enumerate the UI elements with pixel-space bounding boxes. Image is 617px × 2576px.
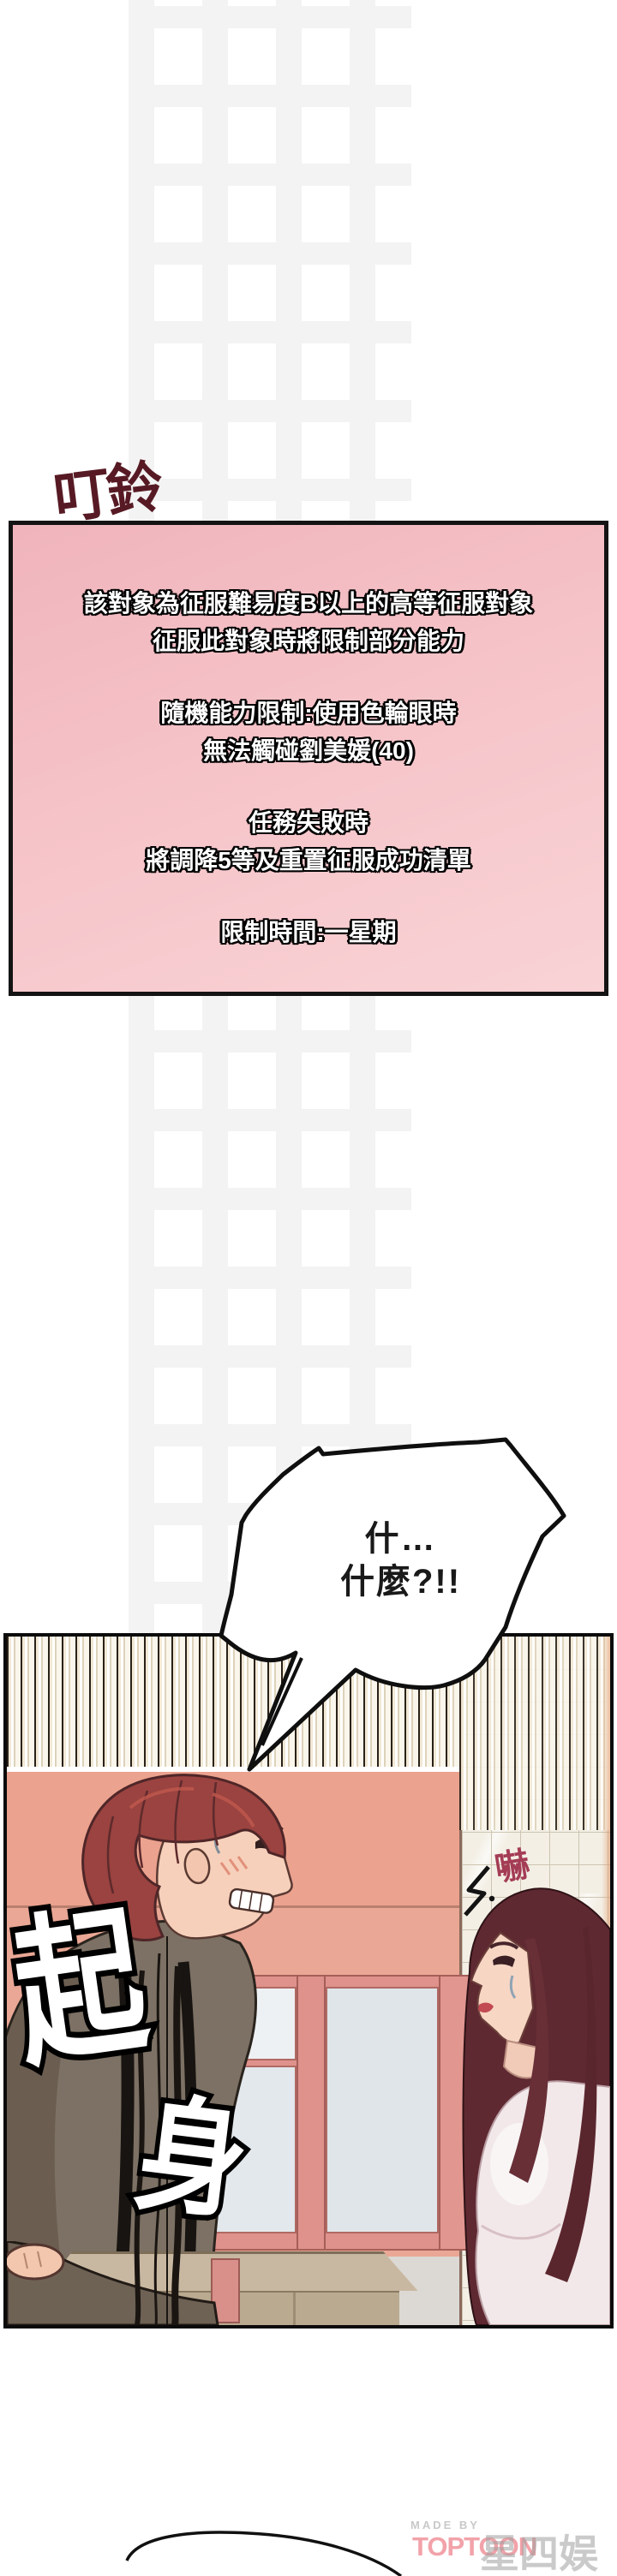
system-line: 限制時間:一星期 xyxy=(13,914,604,951)
made-by-label: MADE BY xyxy=(410,2519,480,2531)
system-line: 征服此對象時將限制部分能力 xyxy=(13,623,604,660)
man-hand xyxy=(7,2245,63,2279)
shout-text: 什… 什麼?!! xyxy=(308,1518,493,1603)
svg-text:身: 身 xyxy=(129,2083,255,2236)
system-line: 無法觸碰劉美媛(40) xyxy=(13,732,604,770)
system-line: 任務失敗時 xyxy=(13,804,604,842)
comic-page: 叮鈴 該對象為征服難易度B以上的高等征服對象 征服此對象時將限制部分能力 隨機能… xyxy=(0,0,617,2576)
spacer xyxy=(13,880,604,914)
system-line: 隨機能力限制:使用色輪眼時 xyxy=(13,695,604,732)
sfx-bell-ring: 叮鈴 xyxy=(49,441,165,535)
next-bubble-arc xyxy=(111,2525,420,2576)
shout-line-2: 什麼?!! xyxy=(308,1560,493,1603)
woman-character xyxy=(456,1881,610,2325)
sfx-rise-1: 起 xyxy=(9,1875,146,2060)
shock-mark-icon xyxy=(461,1864,497,1917)
system-message-text: 該對象為征服難易度B以上的高等征服對象 征服此對象時將限制部分能力 隨機能力限制… xyxy=(13,585,604,951)
system-message-box: 該對象為征服難易度B以上的高等征服對象 征服此對象時將限制部分能力 隨機能力限制… xyxy=(9,521,608,996)
svg-text:起: 起 xyxy=(4,1890,158,2086)
site-watermark: 星四娱乐 xyxy=(480,2523,617,2576)
spacer xyxy=(13,770,604,804)
system-line: 將調降5等及重置征服成功清單 xyxy=(13,842,604,880)
spacer xyxy=(13,660,604,695)
sfx-rise-2: 身 xyxy=(142,2066,245,2221)
system-line: 該對象為征服難易度B以上的高等征服對象 xyxy=(13,585,604,623)
shout-line-1: 什… xyxy=(308,1518,493,1560)
